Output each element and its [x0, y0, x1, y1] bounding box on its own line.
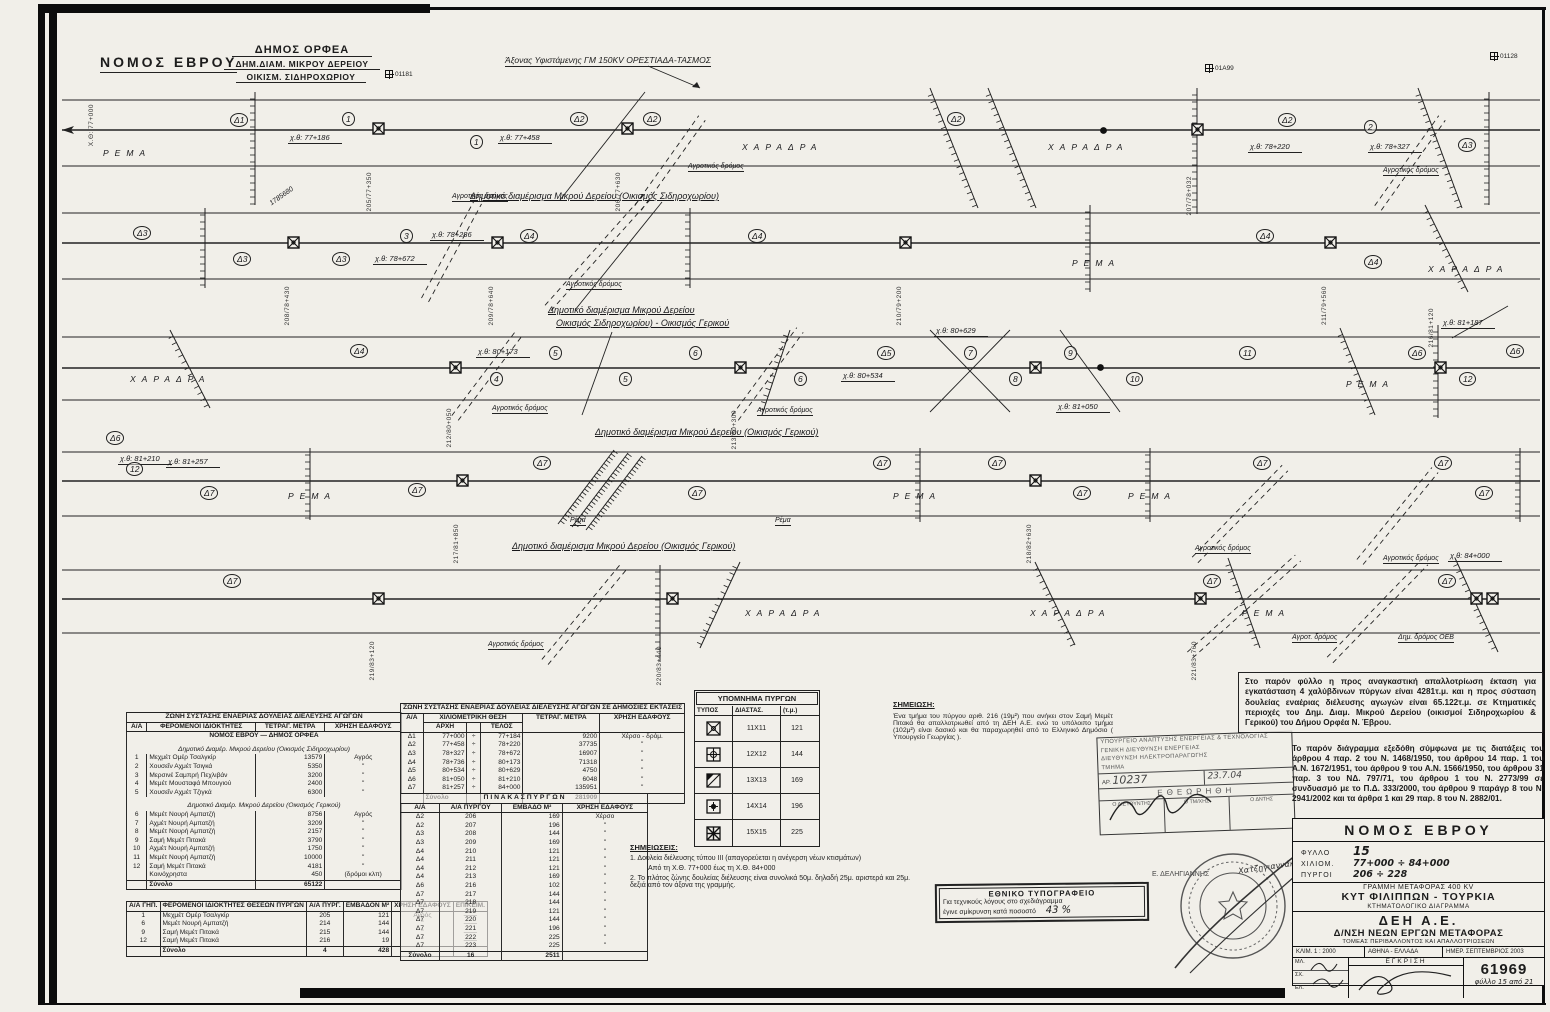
table-row: Δ7219121"	[401, 908, 648, 917]
table-cell: "	[325, 789, 402, 798]
table-cell: 214	[306, 920, 343, 929]
signature-scribble-roles	[1307, 958, 1351, 998]
title-block: ΝΟΜΟΣ ΕΒΡΟΥ ΦΥΛΛΟ 15 ΧΙΛΙΟΜ. 77+000 ÷ 84…	[1292, 818, 1545, 986]
table-cell: 1	[127, 754, 147, 763]
tower-chainage-label: 217/81+850	[453, 524, 460, 564]
table-cell: Σύνολο	[147, 880, 256, 890]
district-title: ΔΗΜ.ΔΙΑΜ. ΜΙΚΡΟΥ ΔΕΡΕΙΟΥ	[224, 59, 380, 70]
terrain-label: ΡΕΜΑ	[1242, 608, 1290, 618]
sheet-label: ΦΥΛΛΟ	[1301, 850, 1353, 857]
pylon-icon	[1190, 122, 1205, 137]
towers-label: ΠΥΡΓΟΙ	[1301, 872, 1353, 879]
pylon-type-icon	[695, 742, 733, 767]
table-cell: "	[562, 891, 647, 900]
legend-col-type: ΤΥΠΟΣ	[695, 706, 733, 715]
table-cell: 225	[502, 934, 562, 943]
place-value: ΑΘΗΝΑ - ΕΛΛΑΔΑ	[1365, 947, 1443, 957]
table-cell: Σύνολο	[160, 946, 306, 956]
table-row: 6Μεμέτ Νουρή Αμπατζή8756Αγρός	[127, 811, 402, 820]
strip-title: Δημοτικό διαμέρισμα Μικρού Δερείου (Οικι…	[595, 427, 818, 437]
table-cell: Μεμέτ Νουρή Αμπατζή	[147, 828, 256, 837]
tower-chainage-label: 209/78+640	[488, 286, 495, 326]
table-cell: 80+534	[423, 767, 467, 776]
table-row: Δ7217144"	[401, 891, 648, 900]
section-label: 3	[400, 229, 413, 243]
signature-scribble-stamp	[1100, 780, 1220, 840]
pylon-icon	[1028, 360, 1043, 375]
terrain-label: ΧΑΡΑΔΡΑ	[1428, 264, 1508, 274]
table-cell: ΧΙΛΙΟΜΕΤΡΙΚΗ ΘΕΣΗ	[423, 713, 523, 723]
road-label: Ρέμα	[775, 517, 791, 526]
note-1: 1. Δουλεία διέλευσης τύπου ΙΙΙ (απαγορεύ…	[630, 855, 922, 862]
note-2: 2. Το πλάτος ζώνης δουλείας διέλευσης εί…	[630, 875, 922, 889]
terrain-label: ΧΑΡΑΔΡΑ	[745, 608, 825, 618]
table-cell: Δ1	[401, 732, 424, 741]
table-cell: Χουσεΐν Αχμέτ Τσιγκά	[147, 763, 256, 772]
road-label: Αγροτικός δρόμος	[688, 163, 744, 172]
tower-chainage-label: 218/82+630	[1026, 524, 1033, 564]
table-cell: "	[325, 854, 402, 863]
table-cell: 12	[127, 863, 147, 872]
pylon-type-icon	[695, 794, 733, 819]
drawing-sheet: ΝΟΜΟΣ ΕΒΡΟΥ ΔΗΜΟΣ ΟΡΦΕΑ ΔΗΜ.ΔΙΑΜ. ΜΙΚΡΟΥ…	[0, 0, 1550, 1012]
table-cell: Δ7	[401, 908, 440, 917]
table-cell: 71318	[523, 759, 600, 768]
legend-row: 13X13169	[695, 768, 819, 794]
table-cell: 196	[502, 822, 562, 831]
table-cell: Μεμέτ Μουσταφά Μπουγιού	[147, 780, 256, 789]
chainage-label: χ.θ: 78+327	[1368, 142, 1422, 153]
pylon-icon	[1323, 235, 1338, 250]
legend-col-area: (τ.μ.)	[781, 706, 813, 715]
road-label: Αγροτ. δρόμος	[1292, 634, 1337, 643]
table-cell: 216	[306, 937, 343, 946]
terrain-label: ΧΑΡΑΔΡΑ	[742, 142, 822, 152]
table-cell: ΤΕΤΡΑΓ. ΜΕΤΡΑ	[523, 713, 600, 732]
section-label: 6	[689, 346, 702, 360]
road-label: Αγροτικός δρόμος	[1383, 555, 1439, 564]
table-cell: (δρόμοι κλπ)	[325, 871, 402, 880]
pylon-dimension: 11X11	[733, 716, 781, 741]
table-cell: 144	[502, 916, 562, 925]
pylon-area: 196	[781, 794, 813, 820]
terrain-label: ΧΑΡΑΔΡΑ	[130, 374, 210, 384]
table-row: Δ4212121"	[401, 865, 648, 874]
pylon-icon	[490, 235, 505, 250]
table-cell: 37735	[523, 741, 600, 750]
table-cell: Α/Α	[401, 803, 440, 813]
table-row: 1Μεχμέτ Ομέρ Τσαλγκίρ13579Αγρός	[127, 754, 402, 763]
table-cell: 144	[502, 891, 562, 900]
table-cell: 2	[127, 763, 147, 772]
table-cell: Δ3	[401, 839, 440, 848]
stamp-signatory-3: Ο ΔΝΤΗΣ	[1230, 795, 1295, 830]
table-cell: Α/Α ΠΥΡΓΟΥ	[439, 803, 501, 813]
reduction-percent: 43 %	[1046, 905, 1072, 916]
expropriation-note-box: Στο παρόν φύλλο η προς αναγκαστική απαλλ…	[1238, 672, 1543, 733]
tower-chainage-label: 212/80+050	[446, 408, 453, 448]
tower-chainage-label: 221/83+760	[1191, 641, 1198, 681]
table-cell: Χέρσο	[562, 813, 647, 822]
table-cell: Δ2	[401, 822, 440, 831]
table-cell: 16	[439, 951, 501, 961]
terrain-label: ΡΕΜΑ	[288, 491, 336, 501]
pylon-legend: ΥΠΟΜΝΗΜΑ ΠΥΡΓΩΝ ΤΥΠΟΣ ΔΙΑΣΤΑΣ. (τ.μ.) 11…	[694, 690, 820, 847]
round-seal	[1155, 828, 1315, 978]
table-cell: "	[325, 863, 402, 872]
chainage-label: χ.θ: 80+629	[934, 326, 988, 337]
tower-chainage-label: 208/78+430	[284, 286, 291, 326]
table-cell: 450	[256, 871, 325, 880]
note-216-body: Ένα τμήμα του πύργου αριθ. 216 (19μ²) πο…	[893, 713, 1113, 741]
table-cell: 1750	[256, 845, 325, 854]
table-cell: 77+000	[423, 732, 467, 741]
line-name-1: ΓΡΑΜΜΗ ΜΕΤΑΦΟΡΑΣ 400 KV	[1293, 884, 1544, 891]
owners-table: ΖΩΝΗ ΣΥΣΤΑΣΗΣ ΕΝΑΕΡΙΑΣ ΔΟΥΛΕΙΑΣ ΔΙΕΛΕΥΣΗ…	[126, 712, 402, 890]
table-cell: Δ7	[401, 891, 440, 900]
table-cell: "	[325, 780, 402, 789]
notes-heading: ΣΗΜΕΙΩΣΕΙΣ:	[630, 843, 922, 852]
table-cell: Δ2	[401, 741, 424, 750]
table-cell: ÷	[467, 741, 480, 750]
terrain-label: ΧΑΡΑΔΡΑ	[1048, 142, 1128, 152]
table-row: Δ4211121"	[401, 856, 648, 865]
table-cell: ÷	[467, 750, 480, 759]
table-cell: 1	[127, 911, 161, 920]
table-cell: 10	[127, 845, 147, 854]
table-cell: Αχμέτ Νουρή Αμπατζή	[147, 820, 256, 829]
line-name-2: ΚΥΤ ΦΙΛΙΠΠΩΝ - ΤΟΥΡΚΙΑ	[1293, 891, 1544, 903]
table-cell: 219	[439, 908, 501, 917]
table-row: Δ6216102"	[401, 882, 648, 891]
table-cell: Π Ι Ν Α Κ Α Σ Π Υ Ρ Γ Ω Ν	[401, 794, 648, 804]
table-row: Δ7222225"	[401, 934, 648, 943]
table-cell: 217	[439, 891, 501, 900]
table-cell: "	[562, 942, 647, 951]
chainage-label: χ.θ: 78+672	[373, 254, 427, 265]
pylon-icon	[1485, 591, 1500, 606]
table-cell: Δ4	[401, 856, 440, 865]
table-row: Δ2207196"	[401, 822, 648, 831]
pylon-icon	[1028, 473, 1043, 488]
law-reference-text: Το παρόν διάγραμμα εξεδόθη σύμφωνα με τι…	[1292, 744, 1544, 804]
table-cell: Δ4	[401, 759, 424, 768]
table-cell: "	[325, 845, 402, 854]
table-cell: Δ3	[401, 830, 440, 839]
section-label: 6	[794, 372, 807, 386]
table-cell: Μεμέτ Νουρή Αμπατζή	[147, 854, 256, 863]
table-row: Κοινόχρηστα450(δρόμοι κλπ)	[127, 871, 402, 880]
table-cell: 78+672	[480, 750, 522, 759]
terrain-label: ΡΕΜΑ	[1072, 258, 1120, 268]
table-row: Α/ΑΦΕΡΟΜΕΝΟΙ ΙΔΙΟΚΤΗΤΕΣΤΕΤΡΑΓ. ΜΕΤΡΑΧΡΗΣ…	[127, 722, 402, 732]
table-cell: Μερσινέ Σαμπρή Πεχλιβάν	[147, 772, 256, 781]
table-cell: Δ7	[401, 899, 440, 908]
note-216-block: ΣΗΜΕΙΩΣΗ: Ένα τμήμα του πύργου αριθ. 216…	[893, 700, 1113, 741]
section-label: 1	[342, 112, 355, 126]
table-cell: Αγρός	[325, 811, 402, 820]
table-row: 11Μεμέτ Νουρή Αμπατζή10000"	[127, 854, 402, 863]
table-cell: 6	[127, 920, 161, 929]
chainage-label: χ.θ: 81+210	[118, 454, 172, 465]
table-row: 10Αχμέτ Νουρή Αμπατζή1750"	[127, 845, 402, 854]
table-cell: 223	[439, 942, 501, 951]
pylon-icon	[665, 591, 680, 606]
table-cell: 213	[439, 873, 501, 882]
sheet-of-note: φύλλο 15 από 21	[1464, 978, 1544, 986]
table-cell: 3790	[256, 837, 325, 846]
line-name-3: ΚΤΗΜΑΤΟΛΟΓΙΚΟ ΔΙΑΓΡΑΜΜΑ	[1293, 903, 1544, 910]
table-row: Δ4210121"	[401, 848, 648, 857]
road-label: Αγροτικός δρόμος	[757, 407, 813, 416]
table-cell: 220	[439, 916, 501, 925]
pylon-dimension: 14X14	[733, 794, 781, 819]
table-cell: 81+050	[423, 776, 467, 785]
pylon-icon	[733, 360, 748, 375]
table-cell: 78+220	[480, 741, 522, 750]
table-cell: 121	[343, 911, 391, 920]
road-label: Αγροτικός δρόμος	[566, 281, 622, 290]
table-row: Δ4213169"	[401, 873, 648, 882]
table-cell: 78+736	[423, 759, 467, 768]
table-cell: 121	[502, 865, 562, 874]
table-cell: ΤΕΤΡΑΓ. ΜΕΤΡΑ	[256, 722, 325, 732]
table-cell: 169	[502, 839, 562, 848]
table-cell: ÷	[467, 767, 480, 776]
table-cell	[467, 723, 480, 733]
table-cell: 221	[439, 925, 501, 934]
table-cell: ÷	[467, 732, 480, 741]
chainage-label: χ.θ: 78+286	[430, 230, 484, 241]
table-cell: ΑΡΧΗ	[423, 723, 467, 733]
chainage-label: χ.θ: 80+173	[476, 347, 530, 358]
pylon-icon	[371, 121, 386, 136]
table-cell: Δ7	[401, 934, 440, 943]
table-cell: 212	[439, 865, 501, 874]
table-cell: 9	[127, 929, 161, 938]
table-cell: 65122	[256, 880, 325, 890]
section-label: 5	[619, 372, 632, 386]
approval-cell: ΕΓΚΡΙΣΗ	[1349, 958, 1464, 998]
legend-row: 14X14196	[695, 794, 819, 820]
table-cell: 225	[502, 942, 562, 951]
table-cell: 4750	[523, 767, 600, 776]
table-cell: ΖΩΝΗ ΣΥΣΤΑΣΗΣ ΕΝΑΕΡΙΑΣ ΔΟΥΛΕΙΑΣ ΔΙΕΛΕΥΣΗ…	[401, 704, 685, 714]
table-cell: 80+629	[480, 767, 522, 776]
table-cell: 209	[439, 839, 501, 848]
table-cell: 81+210	[480, 776, 522, 785]
table-cell: "	[562, 822, 647, 831]
table-cell: 210	[439, 848, 501, 857]
table-cell: 121	[502, 908, 562, 917]
table-row: 4Μεμέτ Μουσταφά Μπουγιού2400"	[127, 780, 402, 789]
table-cell: ΦΕΡΟΜΕΝΟΙ ΙΔΙΟΚΤΗΤΕΣ ΘΕΣΕΩΝ ΠΥΡΓΩΝ	[160, 902, 306, 912]
table-cell: 207	[439, 822, 501, 831]
table-cell	[325, 880, 402, 890]
pylon-icon	[448, 360, 463, 375]
table-cell: 6048	[523, 776, 600, 785]
table-cell	[562, 951, 647, 961]
table-cell: "	[562, 908, 647, 917]
table-cell: "	[325, 828, 402, 837]
table-cell: Α/Α	[127, 722, 147, 732]
chainage-label: χ.θ: 84+000	[1448, 551, 1502, 562]
road-label: Αγροτικός δρόμος	[492, 405, 548, 414]
table-cell: 78+327	[423, 750, 467, 759]
roles-cell: ΜΛ. ΣΧ. ΕΛ.	[1293, 958, 1349, 998]
table-cell: 77+458	[423, 741, 467, 750]
table-row: Σύνολο65122	[127, 880, 402, 890]
table-cell: "	[562, 934, 647, 943]
section-label: 2	[1364, 120, 1377, 134]
table-cell: 144	[343, 929, 391, 938]
table-cell: Δ4	[401, 865, 440, 874]
pylon-area: 169	[781, 768, 813, 794]
table-row: 12Σαμή Μεμέτ Πιτακά4181"	[127, 863, 402, 872]
company-name: ΔΕΗ Α.Ε.	[1293, 913, 1544, 928]
table-cell: 77+184	[480, 732, 522, 741]
tower-chainage-label: 205/77+350	[366, 172, 373, 212]
chainage-label: χ.θ: 80+534	[841, 371, 895, 382]
pylon-icon	[1193, 591, 1208, 606]
company-division: Δ/ΝΣΗ ΝΕΩΝ ΕΡΓΩΝ ΜΕΤΑΦΟΡΑΣ	[1293, 928, 1544, 939]
table-cell: Δ2	[401, 813, 440, 822]
table-cell: Δ6	[401, 882, 440, 891]
pylon-icon	[898, 235, 913, 250]
legend-row: 11X11121	[695, 716, 819, 742]
table-cell: Δ4	[401, 848, 440, 857]
table-cell: 206	[439, 813, 501, 822]
table-cell: "	[562, 899, 647, 908]
table-cell: "	[600, 741, 685, 750]
drawing-number-cell: 61969 φύλλο 15 από 21	[1464, 958, 1544, 998]
table-cell: 144	[343, 920, 391, 929]
table-row: 5Χουσεΐν Αχμέτ Τζιγκά6300"	[127, 789, 402, 798]
strip-title: Οικισμός Σιδηροχωρίου) - Οικισμός Γερικο…	[556, 318, 729, 328]
table-cell: Δ4	[401, 873, 440, 882]
region-title: ΝΟΜΟΣ ΕΒΡΟΥ	[100, 54, 237, 73]
table-cell	[127, 880, 147, 890]
table-cell: 6300	[256, 789, 325, 798]
section-label: 8	[1009, 372, 1022, 386]
table-cell: 13579	[256, 754, 325, 763]
table-row: Δ3208144"	[401, 830, 648, 839]
table-cell: ΦΕΡΟΜΕΝΟΙ ΙΔΙΟΚΤΗΤΕΣ	[147, 722, 256, 732]
pylon-type-icon	[695, 716, 733, 741]
table-cell: Δημοτικό Διαμέρ. Μικρού Δερείου (Οικισμό…	[127, 797, 402, 811]
table-cell: 222	[439, 934, 501, 943]
table-cell: Δημοτικό Διαμέρ. Μικρού Δερείου (Οικισμό…	[127, 741, 402, 755]
pylon-icon	[1469, 591, 1484, 606]
road-label: Δημ. δρόμος ΟΕΒ	[1398, 634, 1454, 643]
chainage-label: χ.θ: 81+187	[1441, 318, 1495, 329]
table-row: Δ478+736÷80+17371318"	[401, 759, 685, 768]
table-cell: "	[325, 820, 402, 829]
table-row: Δ177+000÷77+1849200Χέρσο - δρόμ.	[401, 732, 685, 741]
table-cell: Δ7	[401, 942, 440, 951]
table-cell: 9	[127, 837, 147, 846]
table-cell: 2511	[502, 951, 562, 961]
table-row: 3Μερσινέ Σαμπρή Πεχλιβάν3200"	[127, 772, 402, 781]
tower-chainage-label: 220/83+440	[656, 646, 663, 686]
table-cell: 211	[439, 856, 501, 865]
date-label: ΗΜΕΡ.	[1446, 949, 1464, 955]
road-label: Αγροτικός δρόμος	[1195, 545, 1251, 554]
table-row: Δ378+327÷78+67216907"	[401, 750, 685, 759]
table-cell: 215	[306, 929, 343, 938]
table-cell: Α/Α	[401, 713, 424, 732]
pylon-dimension: 12X12	[733, 742, 781, 767]
table-cell: 9200	[523, 732, 600, 741]
table-row: Δ7218144"	[401, 899, 648, 908]
table-cell	[127, 946, 161, 956]
public-zones-table: ΖΩΝΗ ΣΥΣΤΑΣΗΣ ΕΝΑΕΡΙΑΣ ΔΟΥΛΕΙΑΣ ΔΙΕΛΕΥΣΗ…	[400, 703, 685, 804]
terrain-label: ΡΕΜΑ	[1346, 379, 1394, 389]
tower-chainage-label: Χ.Θ: 77+000	[88, 104, 95, 146]
sheet-number: 15	[1353, 844, 1370, 858]
table-cell: "	[562, 925, 647, 934]
table-cell: 6	[127, 811, 147, 820]
table-row: 8Μεμέτ Νουρή Αμπατζή2157"	[127, 828, 402, 837]
table-cell: Δ6	[401, 776, 424, 785]
company-sector: ΤΟΜΕΑΣ ΠΕΡΙΒΑΛΛΟΝΤΟΣ ΚΑΙ ΑΠΑΛΛΟΤΡΙΩΣΕΩΝ	[1293, 939, 1544, 945]
table-cell: ΕΜΒΑΔΟ Μ²	[502, 803, 562, 813]
section-label: 1	[470, 135, 483, 149]
benchmark-code: 01Α99	[1205, 64, 1234, 72]
tower-chainage-label: 211/79+560	[1321, 286, 1328, 325]
table-cell: 2400	[256, 780, 325, 789]
table-cell: Αγρός	[325, 754, 402, 763]
table-row: Σύνολο162511	[401, 951, 648, 961]
tower-chainage-label: 219/83+120	[369, 641, 376, 681]
table-cell: 428	[343, 946, 391, 956]
table-cell: 19	[343, 937, 391, 946]
table-cell: ΖΩΝΗ ΣΥΣΤΑΣΗΣ ΕΝΑΕΡΙΑΣ ΔΟΥΛΕΙΑΣ ΔΙΕΛΕΥΣΗ…	[127, 713, 402, 723]
note-216-heading: ΣΗΜΕΙΩΣΗ:	[893, 700, 1113, 709]
table-row: Δ681+050÷81+2106048"	[401, 776, 685, 785]
table-row: 2Χουσεΐν Αχμέτ Τσιγκά5350"	[127, 763, 402, 772]
benchmark-code: 01128	[1490, 52, 1518, 60]
table-cell: 7	[127, 820, 147, 829]
legend-title: ΥΠΟΜΝΗΜΑ ΠΥΡΓΩΝ	[696, 692, 818, 705]
table-cell: 169	[502, 813, 562, 822]
legend-col-dim: ΔΙΑΣΤΑΣ.	[733, 706, 781, 715]
pylon-table: Π Ι Ν Α Κ Α Σ Π Υ Ρ Γ Ω ΝΑ/ΑΑ/Α ΠΥΡΓΟΥΕΜ…	[400, 793, 648, 961]
strip-title: Δημοτικό διαμέρισμα Μικρού Δερείου	[548, 305, 695, 315]
table-row: Δ7220144"	[401, 916, 648, 925]
table-row: Δ3209169"	[401, 839, 648, 848]
table-cell: 216	[439, 882, 501, 891]
chainage-label: χ.θ: 78+220	[1248, 142, 1302, 153]
pylon-dimension: 13X13	[733, 768, 781, 793]
table-cell: Α/Α ΓΗΠ.	[127, 902, 161, 912]
table-cell: ΧΡΗΣΗ ΕΔΑΦΟΥΣ	[325, 722, 402, 732]
chainage-label: χ.θ: 77+458	[498, 133, 552, 144]
table-cell: ΕΜΒΑΔΟΝ Μ²	[343, 902, 391, 912]
table-row: Δ580+534÷80+6294750"	[401, 767, 685, 776]
table-cell: 169	[502, 873, 562, 882]
road-label: Ρέμα	[570, 517, 586, 526]
table-cell: Χουσεΐν Αχμέτ Τζιγκά	[147, 789, 256, 798]
table-cell: Μεχμέτ Ομέρ Τσαλγκίρ	[160, 911, 306, 920]
pylon-icon	[455, 473, 470, 488]
table-cell: Σύνολο	[401, 951, 440, 961]
table-row: Δ7223225"	[401, 942, 648, 951]
table-cell: 196	[502, 925, 562, 934]
road-label: Αγροτικός δρόμος	[452, 193, 508, 202]
table-row: 7Αχμέτ Νουρή Αμπατζή3209"	[127, 820, 402, 829]
table-cell: Μεμέτ Νουρή Αμπατζή	[147, 811, 256, 820]
